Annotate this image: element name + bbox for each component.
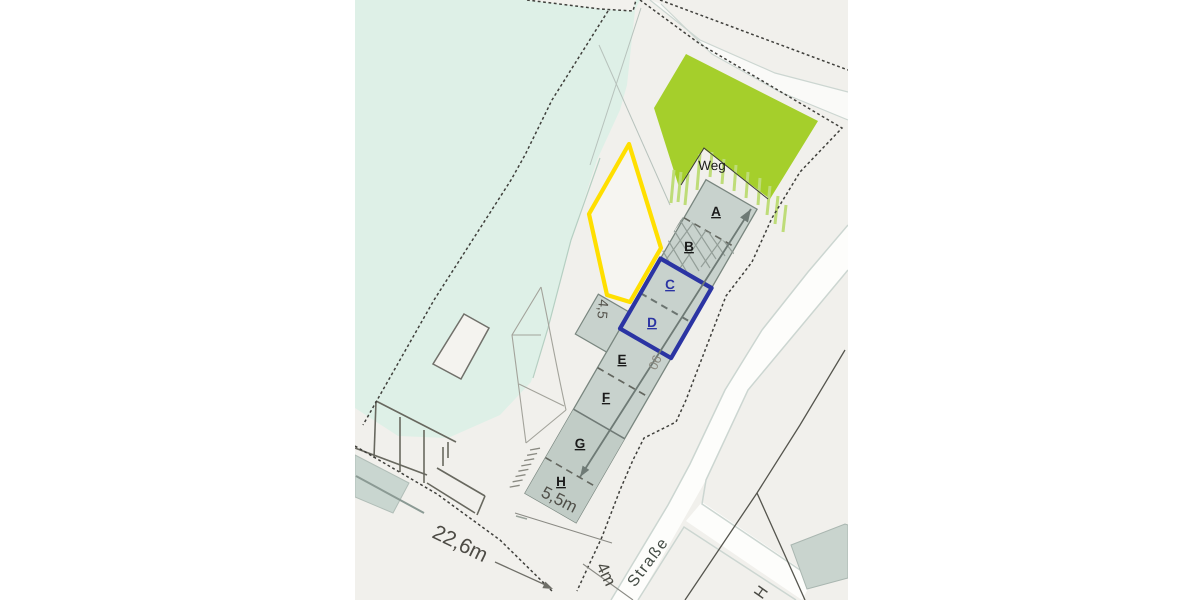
svg-text:Weg: Weg xyxy=(698,158,726,173)
svg-text:H: H xyxy=(556,474,566,489)
svg-text:E: E xyxy=(617,352,626,367)
svg-text:F: F xyxy=(602,390,610,405)
svg-text:G: G xyxy=(575,436,586,451)
svg-text:B: B xyxy=(684,239,694,254)
svg-text:4,5: 4,5 xyxy=(594,299,612,320)
svg-text:C: C xyxy=(665,277,675,292)
svg-text:D: D xyxy=(647,315,657,330)
svg-text:A: A xyxy=(711,204,721,219)
